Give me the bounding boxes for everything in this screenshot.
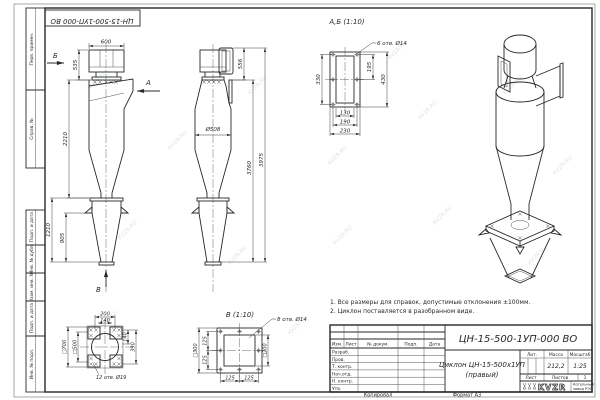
row-prov: Пров. [332,357,345,363]
col-ndoc: № докум. [367,342,389,348]
side-view: Ø508 556 3760 3975 [192,44,267,292]
drawing-canvas: KVZR.RU KVZR.RU KVZR.RU KVZR.RU KVZR.RU … [0,0,600,400]
dim-430: 430 [381,74,387,85]
footer-labels: Копировал Формат А3 [364,393,482,399]
col-list: Лист [345,342,357,348]
note-line-1: 1. Все размеры для справок, допустимые о… [330,299,530,306]
col-podp: Подп. [404,342,417,348]
listov-value: 1 [584,375,587,381]
isometric-view [479,35,563,283]
title-name-line1: Циклон ЦН-15-500х1УП [439,361,526,369]
watermark: KVZR.RU [247,75,268,96]
dim-200: 200 [100,312,110,318]
top-left-stamp: ЦН-15-500-1УП-000 ВО [45,10,140,26]
col-data: Дата [429,342,441,348]
dim-sq300: □300 [193,343,199,357]
dim-125-b: 125 [203,355,209,365]
logo-text: KVZR [538,383,566,392]
view-arrow-a-label: А [145,79,151,87]
watermark: KVZR.RU [327,145,348,166]
notes: 1. Все размеры для справок, допустимые о… [330,299,530,315]
watermark: KVZR.RU [167,130,188,151]
view-v-holes-label: 8 отв. Ø14 [277,316,307,323]
dim-508: Ø508 [205,126,221,133]
dim-sq200: □200 [263,343,269,357]
dim-1210: 1210 [46,223,52,237]
drawing-sheet: KVZR.RU KVZR.RU KVZR.RU KVZR.RU KVZR.RU … [0,0,600,400]
list-label: Лист [525,375,537,381]
view-v-title: В (1:10) [226,311,254,319]
spring-icon [523,383,536,389]
margin-label-inv-podl: Инв. № подл. [29,349,35,379]
dim-125-a: 125 [203,336,209,346]
dim-535: 535 [73,59,79,70]
col-izm: Изм. [332,342,342,348]
scale-value: 1:25 [573,363,587,370]
dim-130: 130 [340,111,351,117]
dim-3760: 3760 [247,161,253,175]
dim-125-c: 125 [225,376,235,382]
watermark: KVZR.RU [87,70,108,91]
dim-sq700: □700 [62,340,68,354]
margin-label-perv: Перв. примен. [29,33,35,66]
dim-330: 330 [316,74,322,85]
margin-label-sprav: Справ. № [29,118,35,140]
section-ab-holes-label: 6 отв. Ø14 [377,40,407,47]
row-nachotd: Нач.отд. [332,371,352,377]
format-label: Формат А3 [453,393,481,399]
view-arrow-b-label: Б [53,52,58,60]
stamp-doc-number: ЦН-15-500-1УП-000 ВО [50,17,133,25]
watermark: KVZR.RU [332,225,353,246]
lit-header: Лит. [527,352,537,358]
title-doc-number: ЦН-15-500-1УП-000 ВО [459,334,578,345]
massa-value: 212,2 [547,363,564,370]
section-ab-title: А,Б (1:10) [328,18,364,26]
kvzr-logo: KVZR Котельный завод РЭП [523,381,595,392]
dim-3975: 3975 [259,153,265,167]
row-utv: Утв. [332,386,341,392]
dim-556: 556 [238,58,244,69]
dim-190: 190 [340,120,351,126]
watermark: KVZR.RU [227,245,248,266]
kopiroval-label: Копировал [364,393,393,399]
dim-390: 390 [131,342,137,352]
logo-sub2: завод РЭП [573,387,593,391]
dim-125-d: 125 [244,376,254,382]
detail-holes-label: 12 отв. Ø19 [96,374,126,381]
view-arrow-v-label: В [96,286,101,294]
margin-label-vzam: Взам. инв. № [29,272,35,302]
dim-2210: 2210 [63,132,69,146]
dim-600: 600 [101,40,112,46]
row-razrab: Разраб. [332,349,349,356]
dim-140-right: 140 [123,332,129,342]
margin-label-podp1: Подп. и дата [29,212,35,242]
section-ab-view: А,Б (1:10) 6 отв. Ø14 330 195 430 130 19… [316,18,407,136]
title-name-line2: (правый) [466,371,499,379]
dim-905: 905 [60,232,66,243]
bottom-flange-detail: 200 140 140 390 □700 □500 12 отв. Ø19 [62,312,138,382]
massa-header: Масса [549,352,563,358]
dim-195: 195 [367,61,373,72]
watermark: KVZR.RU [432,205,453,226]
dim-sq500: □500 [73,340,79,354]
note-line-2: 2. Циклон поставляется в разобранном вид… [330,308,474,315]
left-margin-column: Перв. примен. Справ. № Подп. и дата Инв.… [26,8,45,392]
row-tkontr: Т. контр. [331,364,352,370]
watermark: KVZR.RU [117,220,138,241]
margin-label-inv-dubl: Инв. № дубл. [28,244,35,274]
title-block: Изм. Лист № докум. Подп. Дата Разраб. Пр… [330,325,595,392]
watermark: KVZR.RU [417,100,438,121]
listov-label: Листов [552,375,569,381]
dim-140-top: 140 [100,318,110,324]
row-nkontr: Н. контр. [332,379,353,385]
watermark: KVZR.RU [552,155,573,176]
dim-230: 230 [340,129,351,135]
view-v: В (1:10) 8 отв. Ø14 □300 125 125 125 125… [193,311,307,383]
margin-label-podp2: Подп. и дата [29,303,35,333]
masshtab-header: Масштаб [570,351,591,358]
